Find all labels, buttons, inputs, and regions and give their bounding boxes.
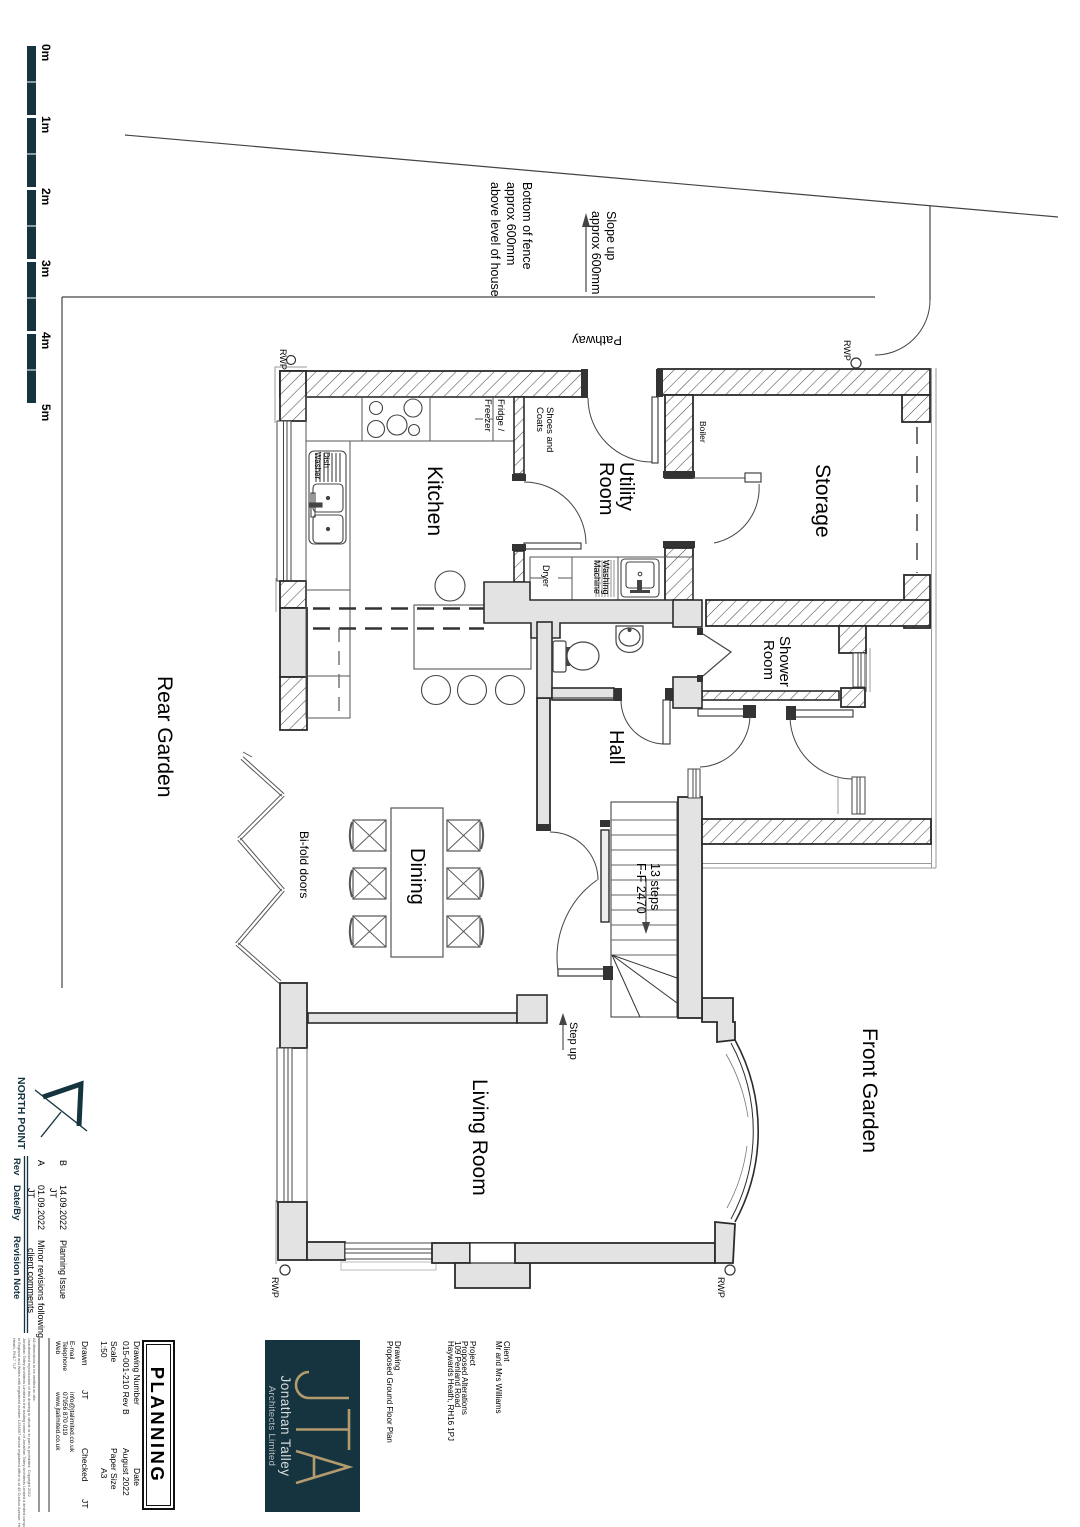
svg-text:Mr and Mrs Williams: Mr and Mrs Williams (494, 1341, 503, 1413)
svg-text:Kitchen: Kitchen (423, 466, 446, 536)
svg-text:RWP: RWP (270, 1277, 280, 1298)
svg-text:Utility: Utility (615, 462, 637, 511)
svg-text:015-001-210 Rev B: 015-001-210 Rev B (121, 1341, 131, 1415)
svg-text:Drawn: Drawn (80, 1341, 90, 1366)
svg-text:Jonathan Talley: Jonathan Talley (278, 1375, 293, 1476)
svg-text:Date: Date (132, 1468, 142, 1486)
svg-text:Hall: Hall (605, 730, 627, 764)
svg-text:Pathway: Pathway (572, 333, 622, 348)
svg-text:Rear Garden: Rear Garden (153, 676, 176, 797)
svg-text:RWP: RWP (842, 340, 852, 361)
svg-text:Proposed Ground Floor Plan: Proposed Ground Floor Plan (385, 1341, 394, 1443)
svg-text:0m: 0m (39, 44, 53, 61)
svg-text:JT: JT (80, 1390, 90, 1399)
svg-text:Room: Room (760, 640, 777, 680)
svg-text:Revision Note: Revision Note (11, 1236, 22, 1299)
svg-text:Shower: Shower (776, 636, 793, 687)
svg-text:Date/By: Date/By (11, 1185, 22, 1221)
svg-text:JT: JT (26, 1188, 36, 1199)
svg-text:Washer: Washer (313, 452, 322, 480)
svg-text:approx 600mm: approx 600mm (504, 182, 518, 265)
svg-text:JT: JT (80, 1499, 90, 1508)
svg-text:above level of house: above level of house (488, 182, 502, 297)
svg-text:1m: 1m (39, 116, 53, 133)
svg-text:Boiler: Boiler (698, 421, 708, 443)
svg-text:Scale: Scale (109, 1341, 119, 1363)
svg-text:07956 870 019: 07956 870 019 (61, 1392, 68, 1436)
svg-text:Bottom of fence: Bottom of fence (520, 182, 534, 270)
svg-text:13 steps: 13 steps (648, 863, 662, 910)
svg-text:Machine: Machine (592, 560, 602, 594)
svg-text:Dining: Dining (406, 848, 428, 905)
svg-text:Checked: Checked (80, 1448, 90, 1482)
svg-text:14.09.2022: 14.09.2022 (58, 1185, 68, 1230)
svg-text:NORTH POINT: NORTH POINT (15, 1077, 27, 1150)
svg-text:approx 600mm: approx 600mm (589, 211, 603, 294)
svg-text:RWP: RWP (716, 1277, 726, 1298)
svg-text:Haywards Heath, RH16 1PJ: Haywards Heath, RH16 1PJ (446, 1341, 455, 1441)
svg-text:Bi-fold doors: Bi-fold doors (297, 831, 311, 898)
svg-text:Minor revisions following: Minor revisions following (36, 1240, 46, 1338)
svg-text:1:50: 1:50 (99, 1341, 109, 1358)
svg-text:Dish: Dish (322, 452, 331, 468)
svg-text:Web: Web (54, 1341, 61, 1355)
svg-text:client comments: client comments (26, 1248, 36, 1314)
svg-text:Freezer: Freezer (482, 399, 493, 432)
svg-text:Dryer: Dryer (541, 565, 551, 587)
svg-text:August 2022: August 2022 (121, 1448, 131, 1496)
svg-text:A: A (36, 1160, 46, 1166)
svg-text:4m: 4m (39, 332, 53, 349)
svg-text:Storage: Storage (811, 464, 834, 538)
svg-text:2m: 2m (39, 188, 53, 205)
svg-text:Planning Issue: Planning Issue (58, 1240, 68, 1299)
svg-text:Room: Room (595, 462, 617, 515)
svg-text:Living Room: Living Room (468, 1079, 491, 1196)
svg-text:Fridge /: Fridge / (495, 399, 506, 432)
svg-text:RWP: RWP (278, 349, 288, 370)
svg-text:Coats: Coats (534, 407, 545, 432)
svg-text:Architects Limited: Architects Limited (266, 1386, 277, 1466)
svg-text:Rev: Rev (11, 1158, 22, 1176)
svg-text:5m: 5m (39, 404, 53, 421)
svg-text:Heath, RH17 7LP: Heath, RH17 7LP (12, 1338, 17, 1370)
svg-text:Front Garden: Front Garden (858, 1028, 881, 1153)
svg-text:B: B (58, 1160, 68, 1166)
svg-text:Step up: Step up (567, 1022, 579, 1060)
svg-text:JT: JT (48, 1188, 58, 1199)
svg-text:A3: A3 (99, 1468, 109, 1479)
svg-text:Telephone: Telephone (61, 1341, 68, 1371)
svg-text:E-mail: E-mail (68, 1341, 75, 1360)
svg-text:www.jtalimited.co.uk: www.jtalimited.co.uk (54, 1391, 61, 1451)
svg-text:PLANNING: PLANNING (147, 1367, 168, 1484)
svg-text:info@jtalimited.co.uk: info@jtalimited.co.uk (68, 1392, 75, 1453)
svg-text:Paper Size: Paper Size (109, 1448, 119, 1490)
svg-text:01.09.2022: 01.09.2022 (36, 1185, 46, 1230)
svg-text:Drawing Number: Drawing Number (132, 1341, 142, 1405)
svg-text:3m: 3m (39, 260, 53, 277)
svg-text:Slope up: Slope up (604, 211, 618, 260)
